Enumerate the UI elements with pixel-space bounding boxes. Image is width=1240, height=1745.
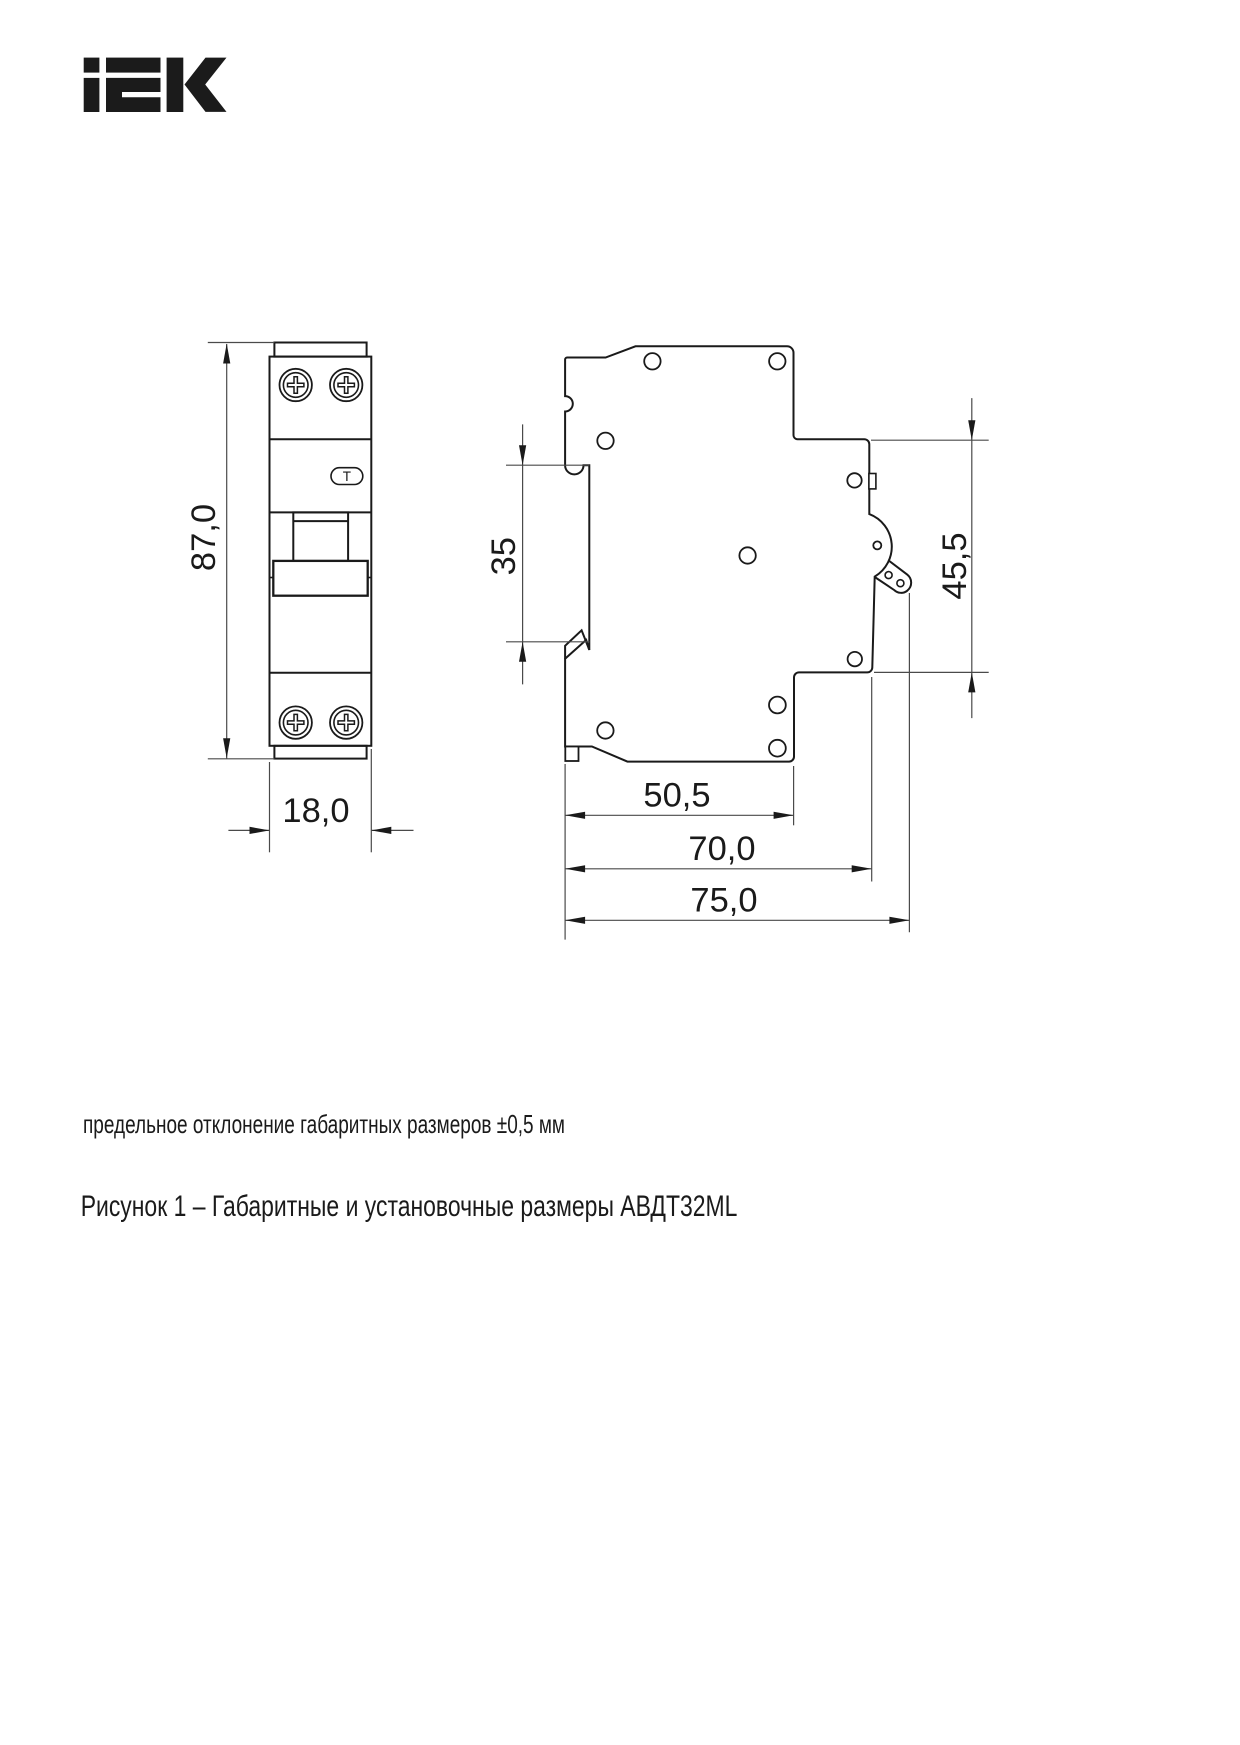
svg-text:18,0: 18,0 [282,792,349,830]
svg-text:предельное отклонение габаритн: предельное отклонение габаритных размеро… [83,1109,565,1139]
svg-text:Рисунок 1 – Габаритные и устан: Рисунок 1 – Габаритные и установочные ра… [81,1190,738,1223]
svg-text:35: 35 [485,537,523,575]
svg-text:50,5: 50,5 [643,777,710,815]
svg-text:75,0: 75,0 [690,882,757,920]
svg-text:87,0: 87,0 [185,504,223,571]
svg-text:T: T [343,469,351,484]
svg-text:45,5: 45,5 [936,532,974,599]
svg-text:70,0: 70,0 [688,830,755,868]
